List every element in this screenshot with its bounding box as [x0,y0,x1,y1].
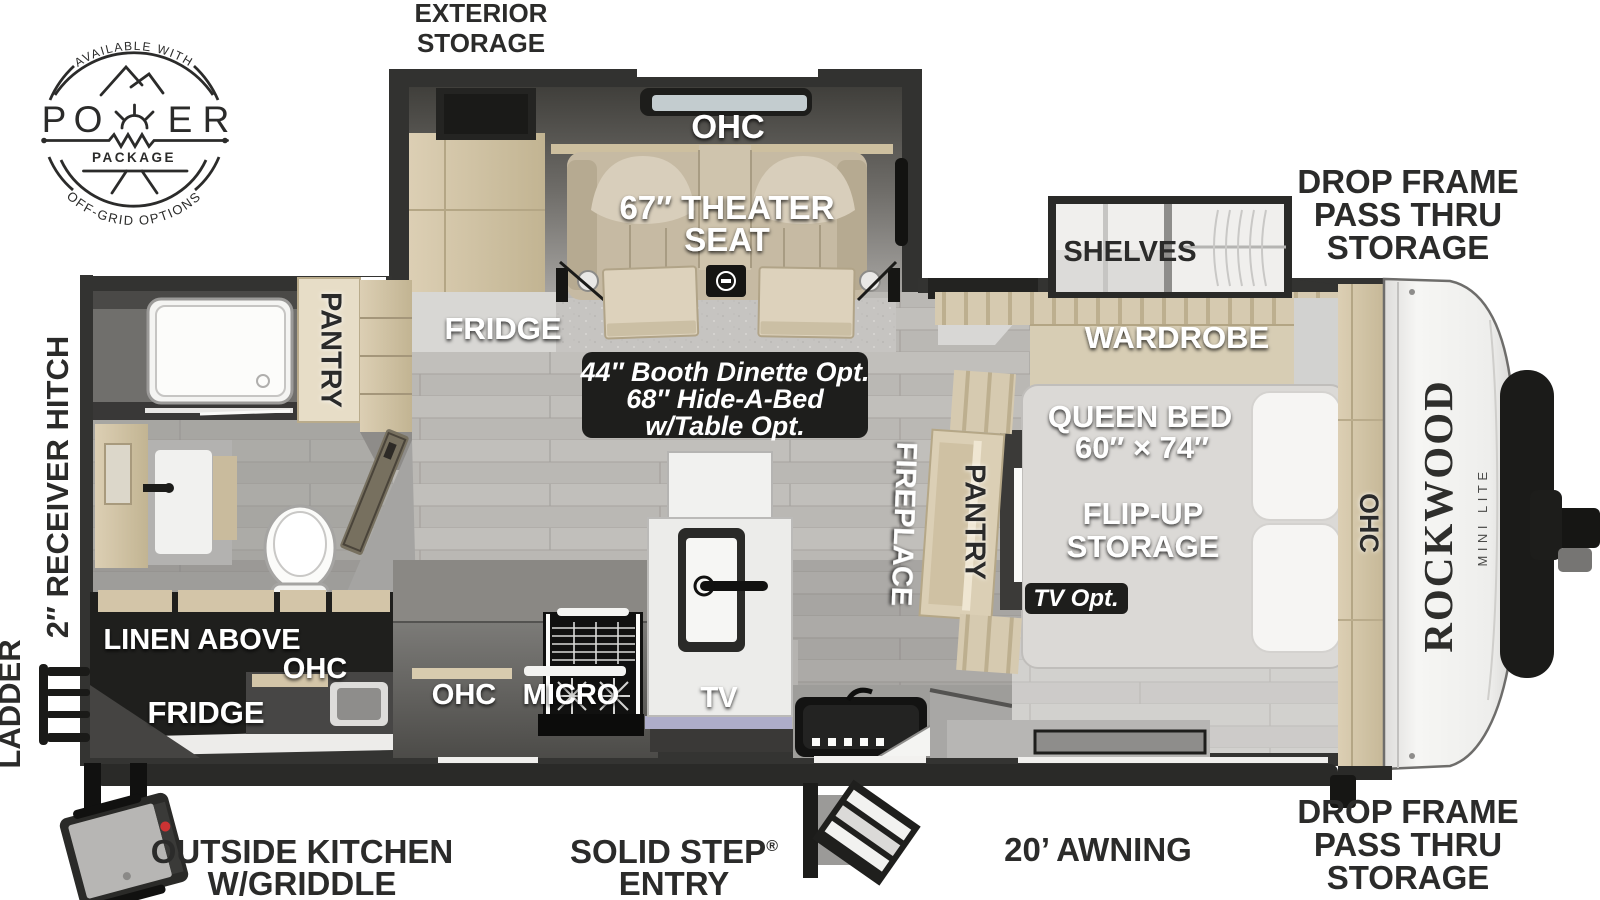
svg-text:TV Opt.: TV Opt. [1033,585,1118,612]
svg-text:LADDER: LADDER [0,639,27,768]
svg-text:DROP FRAME: DROP FRAME [1297,793,1518,830]
svg-text:QUEEN BED: QUEEN BED [1048,399,1232,434]
svg-text:PASS THRU: PASS THRU [1314,826,1502,863]
svg-text:R: R [203,99,230,140]
svg-text:SEAT: SEAT [684,221,770,258]
svg-text:E: E [168,99,193,140]
svg-text:W/GRIDDLE: W/GRIDDLE [208,865,397,900]
svg-text:OHC: OHC [432,679,497,711]
svg-text:MINI LITE: MINI LITE [1475,467,1490,566]
svg-text:PANTRY: PANTRY [314,292,346,408]
svg-text:STORAGE: STORAGE [1067,529,1220,564]
svg-text:WARDROBE: WARDROBE [1085,320,1269,355]
svg-text:DROP FRAME: DROP FRAME [1297,163,1518,200]
svg-text:20’ AWNING: 20’ AWNING [1004,831,1192,868]
svg-text:OHC: OHC [691,108,764,145]
svg-text:MICRO: MICRO [523,679,620,711]
svg-text:ROCKWOOD: ROCKWOOD [1415,379,1461,652]
svg-text:STORAGE: STORAGE [1327,859,1490,896]
svg-text:EXTERIOR: EXTERIOR [415,0,548,28]
svg-text:FRIDGE: FRIDGE [444,311,561,346]
svg-text:STORAGE: STORAGE [417,28,545,58]
svg-text:2″ RECEIVER HITCH: 2″ RECEIVER HITCH [40,336,75,639]
svg-text:PASS THRU: PASS THRU [1314,196,1502,233]
svg-text:68″ Hide-A-Bed: 68″ Hide-A-Bed [626,384,824,414]
svg-text:LINEN ABOVE: LINEN ABOVE [103,624,300,656]
svg-text:TV: TV [700,682,738,714]
svg-text:OHC: OHC [283,653,348,685]
svg-text:w/Table Opt.: w/Table Opt. [645,411,805,441]
svg-text:44″ Booth Dinette Opt.: 44″ Booth Dinette Opt. [580,357,870,387]
svg-text:O: O [74,99,103,140]
svg-text:60″ × 74″: 60″ × 74″ [1075,430,1209,465]
svg-text:FIREPLACE: FIREPLACE [884,441,922,606]
svg-text:PACKAGE: PACKAGE [92,150,176,165]
svg-text:ENTRY: ENTRY [619,865,730,900]
svg-text:PANTRY: PANTRY [958,464,990,580]
svg-text:FLIP-UP: FLIP-UP [1083,496,1204,531]
svg-text:P: P [42,99,67,140]
svg-text:FRIDGE: FRIDGE [147,695,264,730]
svg-text:SHELVES: SHELVES [1063,236,1196,268]
svg-text:OHC: OHC [1354,493,1384,553]
svg-text:STORAGE: STORAGE [1327,229,1490,266]
